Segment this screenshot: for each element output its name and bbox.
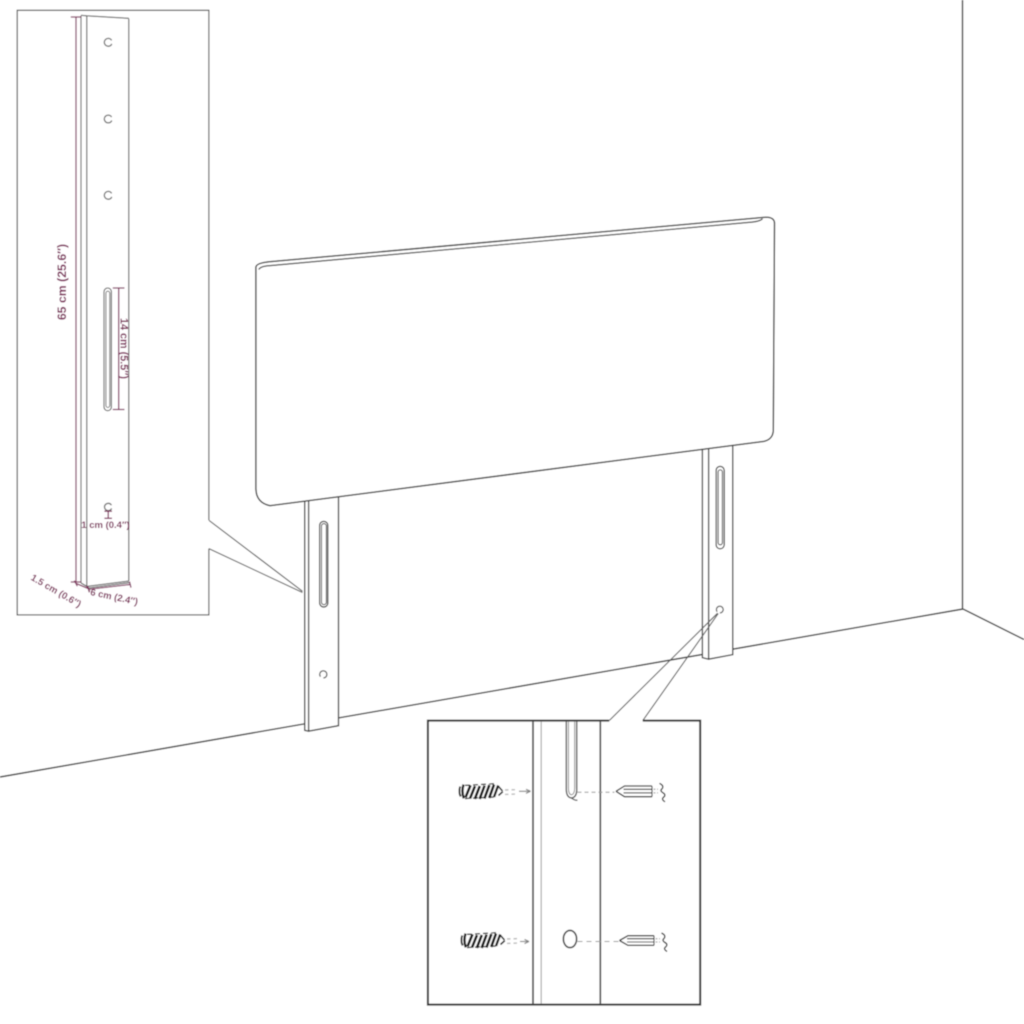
svg-text:14 cm (5.5″): 14 cm (5.5″) [118, 318, 130, 379]
svg-text:65 cm (25.6″): 65 cm (25.6″) [55, 244, 69, 320]
svg-text:1 cm (0.4″): 1 cm (0.4″) [81, 520, 129, 531]
